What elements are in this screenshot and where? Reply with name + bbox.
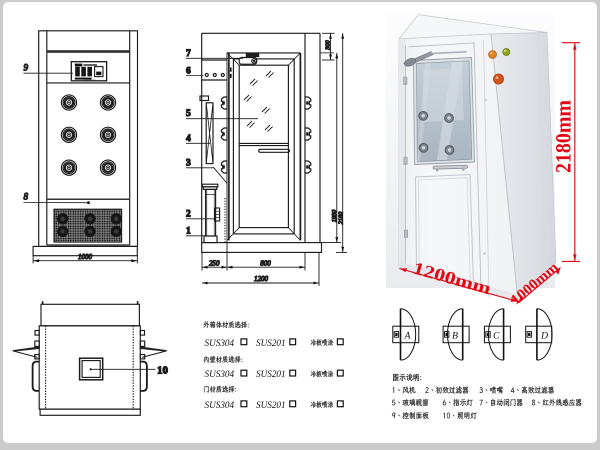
- svg-text:2180mm: 2180mm: [551, 100, 576, 173]
- svg-text:4: 4: [186, 134, 191, 144]
- svg-text:2180: 2180: [338, 211, 345, 224]
- svg-text:D: D: [540, 331, 548, 342]
- svg-text:300: 300: [324, 39, 331, 50]
- svg-text:250: 250: [209, 259, 220, 267]
- svg-text:1200: 1200: [254, 275, 269, 283]
- svg-text:9: 9: [24, 63, 29, 73]
- svg-text:SUS304: SUS304: [205, 400, 235, 410]
- svg-text:8: 8: [24, 192, 29, 202]
- svg-text:SUS201: SUS201: [256, 369, 286, 379]
- svg-text:B: B: [452, 331, 458, 342]
- svg-text:C: C: [493, 331, 500, 342]
- svg-text:1: 1: [186, 227, 191, 237]
- svg-text:1000: 1000: [78, 253, 93, 261]
- svg-text:SUS201: SUS201: [256, 338, 286, 348]
- svg-text:SUS201: SUS201: [256, 400, 286, 410]
- svg-text:A: A: [404, 331, 412, 342]
- svg-text:10: 10: [157, 365, 169, 377]
- svg-text:3: 3: [186, 159, 191, 169]
- svg-text:2: 2: [186, 210, 191, 220]
- svg-text:5: 5: [186, 109, 191, 119]
- svg-text:SUS304: SUS304: [205, 369, 235, 379]
- svg-text:7: 7: [186, 49, 191, 59]
- svg-text:800: 800: [260, 259, 271, 267]
- svg-text:SUS304: SUS304: [205, 338, 235, 348]
